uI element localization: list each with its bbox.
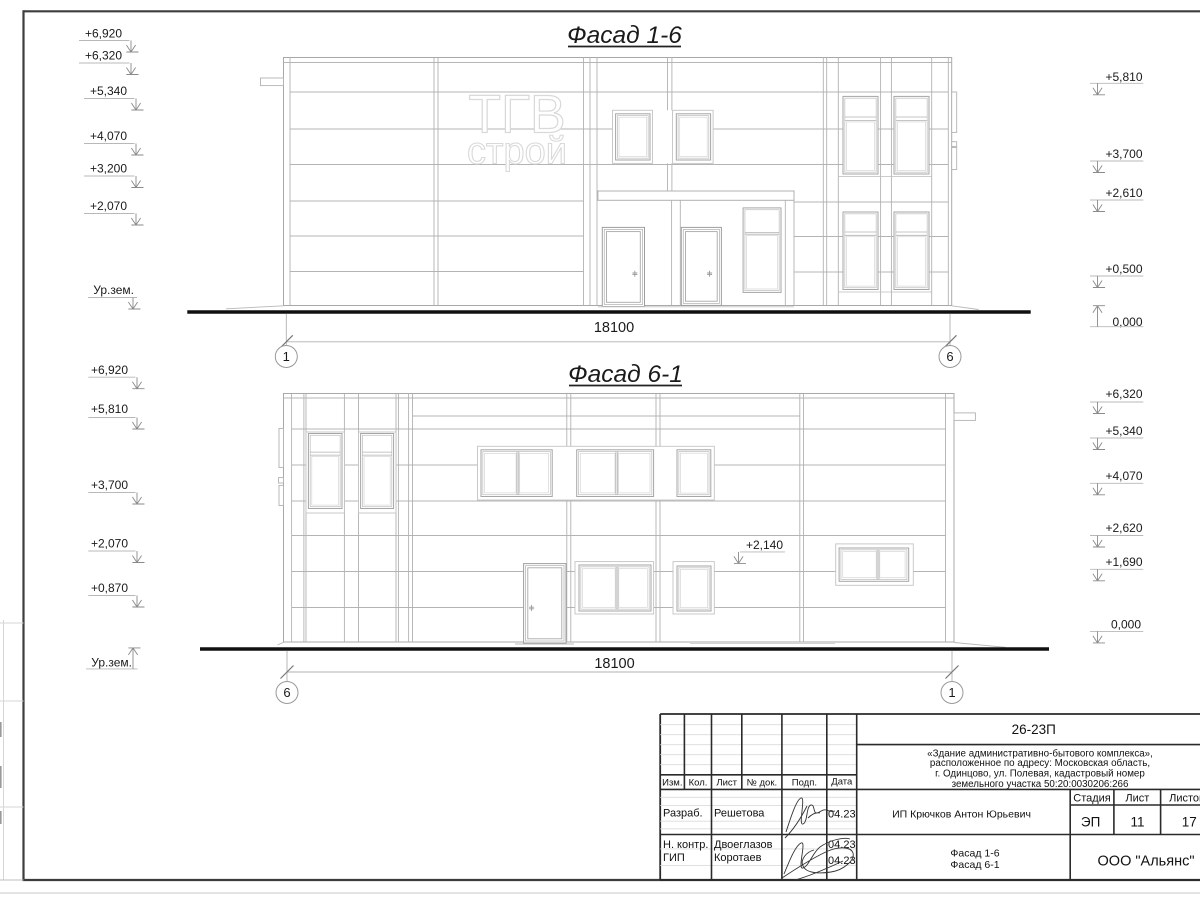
svg-text:Фасад 1-6: Фасад 1-6 (950, 847, 999, 859)
svg-text:6: 6 (946, 349, 953, 364)
svg-text:Ур.зем.: Ур.зем. (93, 283, 134, 297)
svg-text:+2,620: +2,620 (1105, 521, 1142, 535)
svg-text:+3,200: +3,200 (90, 162, 127, 176)
svg-text:+0,500: +0,500 (1105, 262, 1142, 276)
svg-text:Фасад 1-6: Фасад 1-6 (567, 22, 682, 49)
svg-text:+5,810: +5,810 (91, 402, 128, 416)
svg-text:Разраб.: Разраб. (663, 807, 703, 819)
svg-text:Лист: Лист (716, 777, 737, 788)
svg-text:1: 1 (283, 349, 290, 364)
svg-text:+6,920: +6,920 (91, 363, 128, 377)
svg-text:+3,700: +3,700 (1105, 147, 1142, 161)
svg-text:+6,920: +6,920 (85, 27, 122, 41)
svg-text:04.23: 04.23 (828, 808, 856, 820)
svg-text:+0,870: +0,870 (91, 581, 128, 595)
svg-text:№ док.: № док. (747, 777, 777, 788)
svg-text:Дата: Дата (831, 777, 853, 788)
svg-text:Лист: Лист (1125, 793, 1149, 805)
svg-text:26-23П: 26-23П (1012, 722, 1056, 737)
svg-text:Фасад 6-1: Фасад 6-1 (950, 859, 999, 871)
svg-text:+4,070: +4,070 (1105, 469, 1142, 483)
svg-text:ЭП: ЭП (1081, 815, 1100, 830)
svg-text:Изм.: Изм. (662, 777, 682, 788)
svg-text:Стадия: Стадия (1073, 793, 1111, 805)
svg-text:+6,320: +6,320 (1105, 387, 1142, 401)
svg-text:+3,700: +3,700 (91, 478, 128, 492)
svg-text:18100: 18100 (594, 656, 634, 672)
svg-text:+5,340: +5,340 (1105, 424, 1142, 438)
svg-text:Фасад 6-1: Фасад 6-1 (568, 361, 683, 388)
svg-text:Кол.: Кол. (689, 777, 708, 788)
svg-text:земельного участка 50:20:00302: земельного участка 50:20:0030206:266 (952, 779, 1129, 790)
svg-text:ИП Крючков Антон Юрьевич: ИП Крючков Антон Юрьевич (892, 809, 1031, 821)
svg-text:+2,140: +2,140 (746, 538, 783, 552)
svg-text:Подп.: Подп. (792, 777, 817, 788)
svg-text:Двоеглазов: Двоеглазов (714, 839, 773, 851)
svg-text:Листов: Листов (1169, 793, 1200, 805)
svg-text:+5,810: +5,810 (1105, 70, 1142, 84)
svg-text:0,000: 0,000 (1111, 617, 1141, 631)
svg-text:+4,070: +4,070 (90, 129, 127, 143)
svg-text:+2,070: +2,070 (90, 199, 127, 213)
svg-text:11: 11 (1130, 815, 1144, 830)
svg-text:ООО "Альянс": ООО "Альянс" (1098, 853, 1195, 869)
svg-text:+1,690: +1,690 (1105, 555, 1142, 569)
svg-text:Н. контр.: Н. контр. (663, 839, 708, 851)
svg-text:Коротаев: Коротаев (714, 852, 762, 864)
svg-text:1: 1 (948, 685, 955, 700)
svg-text:17: 17 (1182, 815, 1197, 830)
svg-text:ГИП: ГИП (663, 852, 685, 864)
svg-text:+6,320: +6,320 (85, 49, 122, 63)
svg-text:+2,610: +2,610 (1105, 186, 1142, 200)
svg-text:г. Одинцово, ул. Полевая, када: г. Одинцово, ул. Полевая, кадастровый но… (935, 769, 1145, 780)
svg-text:18100: 18100 (594, 320, 634, 336)
svg-text:+2,070: +2,070 (91, 536, 128, 550)
svg-text:+5,340: +5,340 (90, 84, 127, 98)
svg-text:расположенное по адресу: Моско: расположенное по адресу: Московская обла… (930, 758, 1150, 769)
svg-text:6: 6 (283, 685, 290, 700)
svg-text:Ур.зем.: Ур.зем. (91, 655, 132, 669)
svg-text:Решетова: Решетова (714, 807, 765, 819)
svg-text:строй: строй (467, 130, 567, 172)
